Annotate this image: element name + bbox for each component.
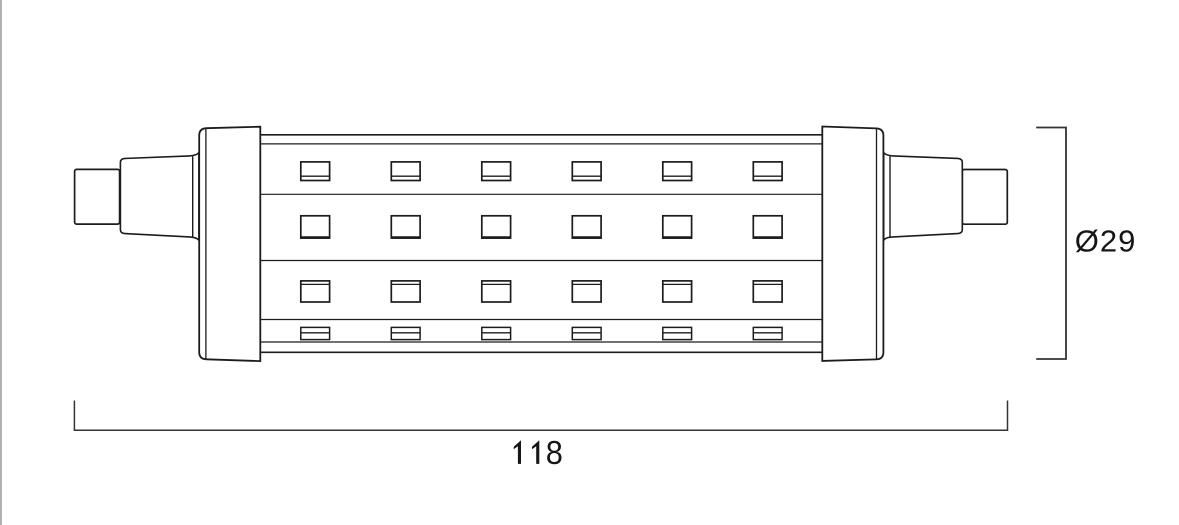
svg-text:8: 8 bbox=[546, 434, 563, 471]
svg-text:Ø29: Ø29 bbox=[1075, 224, 1137, 259]
